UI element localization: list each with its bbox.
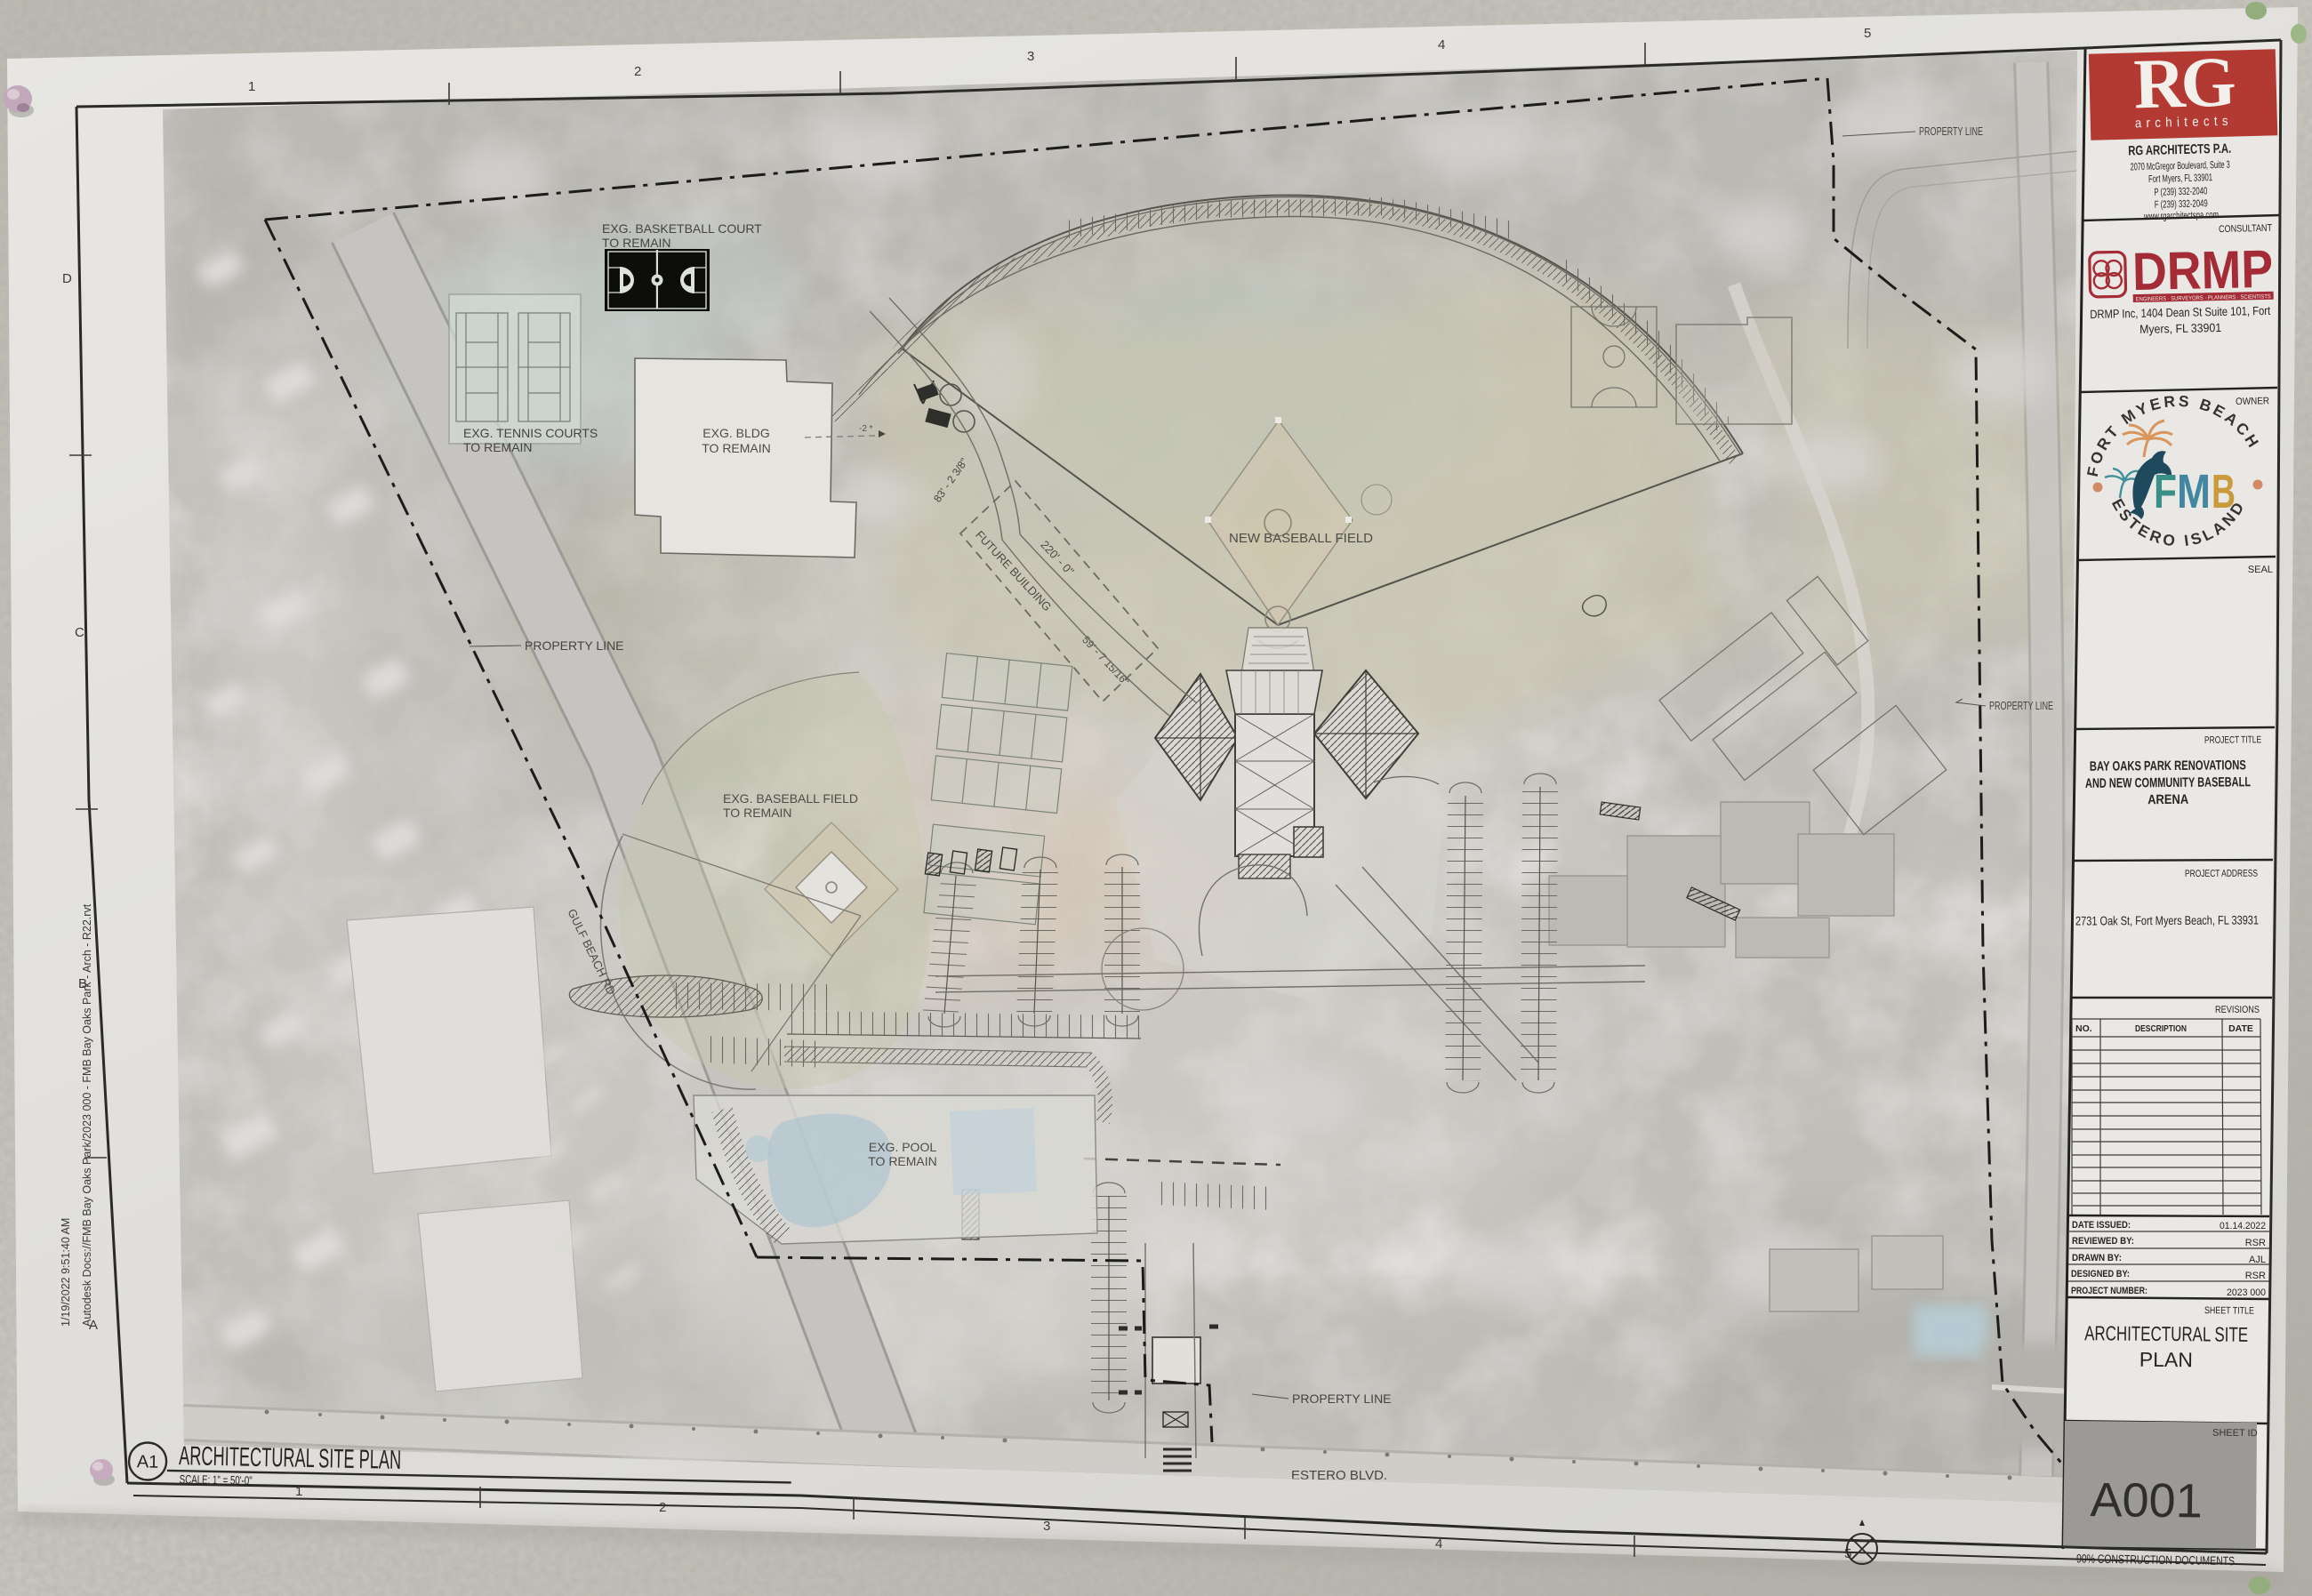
svg-text:2023 000: 2023 000 [2227, 1287, 2266, 1298]
svg-text:01.14.2022: 01.14.2022 [2220, 1221, 2266, 1231]
svg-text:BAY OAKS PARK RENOVATIONS: BAY OAKS PARK RENOVATIONS [2090, 758, 2246, 774]
svg-text:DRAWN BY:: DRAWN BY: [2072, 1253, 2122, 1263]
svg-text:1: 1 [295, 1484, 302, 1499]
svg-text:ARENA: ARENA [2147, 792, 2188, 807]
svg-text:1: 1 [248, 79, 255, 94]
svg-text:3: 3 [1027, 49, 1034, 64]
svg-text:AND NEW COMMUNITY BASEBALL: AND NEW COMMUNITY BASEBALL [2085, 774, 2251, 791]
svg-text:EXG. BASEBALL FIELD: EXG. BASEBALL FIELD [723, 791, 858, 806]
svg-text:PROJECT NUMBER:: PROJECT NUMBER: [2071, 1286, 2147, 1296]
svg-text:TO REMAIN: TO REMAIN [702, 441, 771, 455]
svg-text:A001: A001 [2090, 1473, 2203, 1528]
svg-text:EXG. POOL: EXG. POOL [869, 1140, 936, 1154]
svg-text:RG: RG [2133, 43, 2236, 124]
svg-text:PROPERTY LINE: PROPERTY LINE [525, 638, 624, 653]
svg-text:D: D [62, 271, 72, 286]
svg-text:AJL: AJL [2249, 1255, 2266, 1265]
svg-text:TO REMAIN: TO REMAIN [868, 1154, 937, 1168]
svg-text:2731 Oak St, Fort Myers Beach,: 2731 Oak St, Fort Myers Beach, FL 33931 [2075, 912, 2259, 927]
svg-text:F: F [2154, 465, 2177, 518]
svg-text:CONSULTANT: CONSULTANT [2219, 223, 2272, 235]
svg-text:C: C [75, 625, 84, 640]
svg-text:DATE: DATE [2228, 1023, 2253, 1034]
svg-text:DESIGNED BY:: DESIGNED BY: [2071, 1269, 2130, 1279]
svg-text:DATE ISSUED:: DATE ISSUED: [2072, 1220, 2131, 1231]
svg-text:4: 4 [1435, 1536, 1442, 1552]
svg-text:SCALE: 1" = 50'-0": SCALE: 1" = 50'-0" [180, 1472, 253, 1488]
svg-text:4: 4 [1438, 37, 1445, 52]
svg-text:OWNER: OWNER [2236, 396, 2269, 407]
svg-text:EXG. BLDG: EXG. BLDG [702, 426, 769, 440]
svg-text:TO REMAIN: TO REMAIN [602, 236, 671, 250]
svg-text:5: 5 [1864, 26, 1871, 41]
svg-text:SEAL: SEAL [2248, 565, 2273, 575]
svg-text:PROJECT ADDRESS: PROJECT ADDRESS [2185, 869, 2258, 879]
svg-text:RSR: RSR [2245, 1238, 2266, 1248]
svg-text:EXG. BASKETBALL COURT: EXG. BASKETBALL COURT [602, 221, 762, 236]
svg-text:architects: architects [2135, 114, 2233, 132]
svg-text:F (239) 332-2049: F (239) 332-2049 [2155, 198, 2208, 210]
svg-text:NO.: NO. [2075, 1023, 2092, 1034]
svg-text:RSR: RSR [2245, 1271, 2266, 1281]
svg-text:RG ARCHITECTS P.A.: RG ARCHITECTS P.A. [2128, 141, 2231, 159]
svg-text:REVISIONS: REVISIONS [2215, 1005, 2260, 1015]
svg-text:PROJECT TITLE: PROJECT TITLE [2204, 734, 2261, 746]
svg-text:PROPERTY LINE: PROPERTY LINE [1989, 699, 2053, 712]
svg-text:2: 2 [659, 1500, 666, 1515]
svg-text:SHEET ID: SHEET ID [2212, 1428, 2258, 1440]
svg-text:1/19/2022 9:51:40 AM: 1/19/2022 9:51:40 AM [60, 1218, 72, 1327]
svg-text:SHEET TITLE: SHEET TITLE [2204, 1305, 2254, 1316]
svg-text:REVIEWED BY:: REVIEWED BY: [2072, 1236, 2134, 1247]
svg-text:ARCHITECTURAL SITE PLAN: ARCHITECTURAL SITE PLAN [179, 1441, 402, 1475]
svg-text:2: 2 [634, 64, 641, 79]
svg-text:Autodesk Docs://FMB Bay Oaks P: Autodesk Docs://FMB Bay Oaks Park/2023 0… [81, 903, 93, 1327]
svg-text:P (239) 332-2040: P (239) 332-2040 [2154, 186, 2207, 197]
svg-text:-2 *: -2 * [859, 424, 873, 434]
svg-text:B: B [2212, 465, 2236, 518]
svg-text:TO REMAIN: TO REMAIN [463, 440, 533, 454]
svg-text:www.rgarchitectspa.com: www.rgarchitectspa.com [2143, 210, 2219, 222]
svg-text:3: 3 [1043, 1519, 1050, 1534]
svg-text:M: M [2177, 465, 2211, 518]
svg-text:PLAN: PLAN [2139, 1348, 2193, 1372]
svg-text:PROPERTY LINE: PROPERTY LINE [1292, 1391, 1392, 1406]
svg-text:EXG. TENNIS COURTS: EXG. TENNIS COURTS [463, 426, 598, 440]
svg-text:DESCRIPTION: DESCRIPTION [2135, 1023, 2187, 1034]
svg-text:ARCHITECTURAL SITE: ARCHITECTURAL SITE [2084, 1321, 2248, 1346]
svg-text:PROPERTY LINE: PROPERTY LINE [1919, 124, 1983, 138]
svg-text:Fort Myers, FL 33901: Fort Myers, FL 33901 [2148, 172, 2212, 185]
svg-text:A1: A1 [137, 1452, 159, 1472]
svg-text:TO REMAIN: TO REMAIN [723, 806, 792, 820]
svg-text:NEW BASEBALL FIELD: NEW BASEBALL FIELD [1229, 531, 1373, 546]
svg-text:Myers, FL 33901: Myers, FL 33901 [2139, 321, 2221, 336]
